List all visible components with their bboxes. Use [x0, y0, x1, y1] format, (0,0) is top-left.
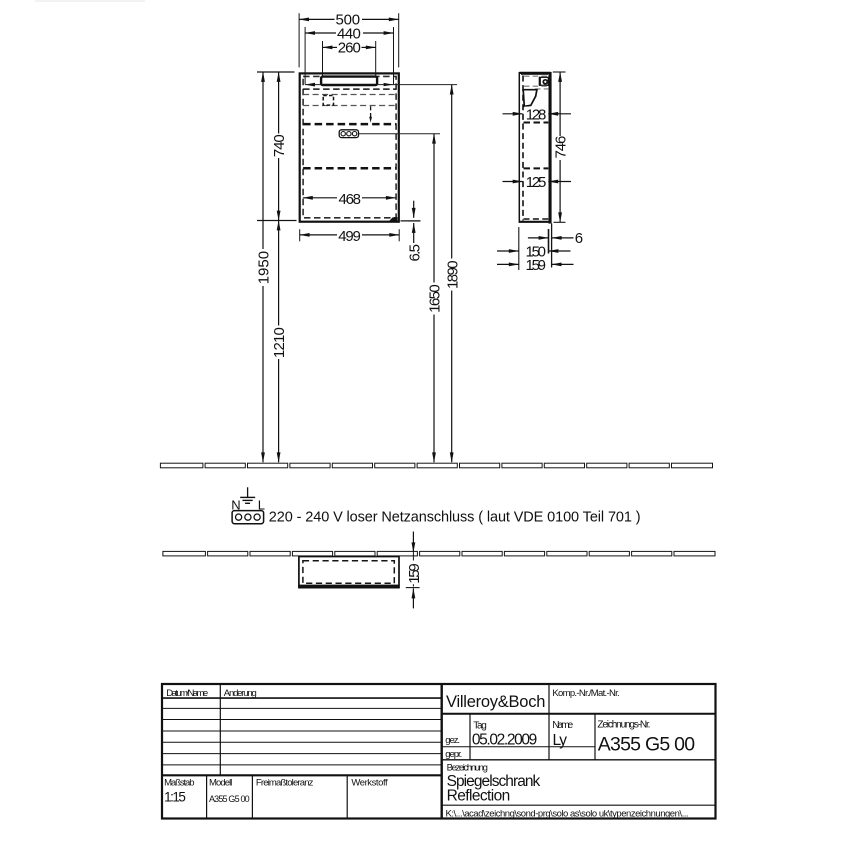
svg-text:Komp.-Nr./Mat.-Nr.: Komp.-Nr./Mat.-Nr.: [552, 688, 619, 699]
svg-text:1:15: 1:15: [164, 790, 186, 805]
svg-text:499: 499: [338, 228, 361, 245]
svg-text:Tag: Tag: [473, 720, 487, 731]
svg-text:6.5: 6.5: [406, 244, 423, 262]
svg-text:128: 128: [526, 106, 547, 123]
svg-text:6: 6: [575, 230, 583, 247]
svg-text:Bezeichnung: Bezeichnung: [447, 762, 488, 773]
svg-text:Reflection: Reflection: [447, 788, 511, 805]
svg-text:1890: 1890: [444, 260, 461, 289]
svg-text:468: 468: [339, 191, 362, 208]
svg-text:159: 159: [526, 257, 547, 274]
svg-text:125: 125: [526, 174, 547, 191]
svg-text:gez.: gez.: [445, 735, 460, 746]
svg-text:K:\...\acad\zeichng\sond-prg\s: K:\...\acad\zeichng\sond-prg\solo as\sol…: [446, 809, 689, 820]
svg-text:Anderung: Anderung: [224, 688, 257, 699]
svg-text:A355 G5 00: A355 G5 00: [209, 794, 250, 804]
svg-text:740: 740: [271, 134, 288, 157]
svg-text:159: 159: [406, 563, 423, 584]
svg-text:Werkstoff: Werkstoff: [351, 778, 388, 789]
svg-text:1950: 1950: [256, 251, 273, 284]
svg-text:260: 260: [338, 40, 361, 57]
svg-text:1210: 1210: [271, 327, 288, 358]
svg-text:gepr.: gepr.: [445, 749, 462, 760]
svg-text:220 - 240 V loser Netzanschlus: 220 - 240 V loser Netzanschluss ( laut V…: [269, 509, 641, 525]
svg-text:Modell: Modell: [209, 778, 232, 789]
svg-text:Villeroy&Boch: Villeroy&Boch: [446, 693, 545, 711]
svg-text:Maßstab: Maßstab: [164, 778, 194, 789]
svg-text:1650: 1650: [427, 284, 444, 313]
svg-text:Freimaßtoleranz: Freimaßtoleranz: [256, 778, 314, 789]
svg-text:A355 G5 00: A355 G5 00: [598, 734, 696, 756]
svg-text:Name: Name: [552, 720, 573, 731]
svg-text:05.02.2009: 05.02.2009: [472, 731, 537, 748]
svg-text:Datum/Name: Datum/Name: [166, 688, 208, 699]
svg-text:746: 746: [553, 136, 570, 159]
svg-text:Zeichnungs-Nr.: Zeichnungs-Nr.: [597, 719, 650, 730]
